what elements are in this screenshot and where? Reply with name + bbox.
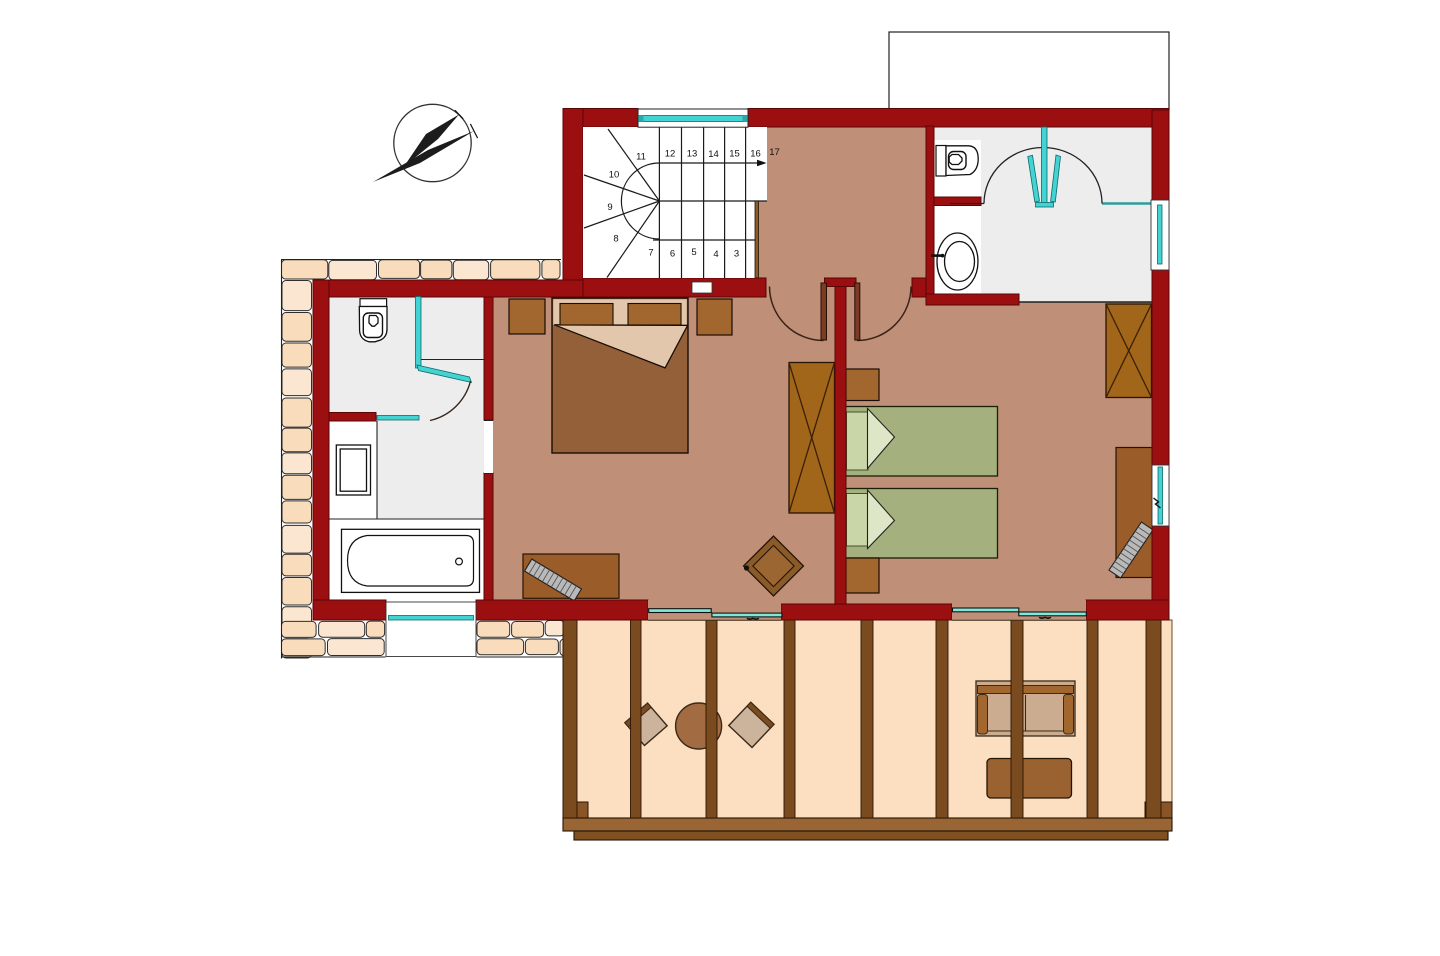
svg-text:10: 10 (609, 169, 620, 180)
svg-text:14: 14 (708, 149, 719, 160)
svg-text:15: 15 (729, 148, 740, 159)
svg-text:6: 6 (670, 248, 675, 259)
svg-text:13: 13 (687, 148, 698, 159)
svg-text:16: 16 (750, 148, 761, 159)
svg-text:9: 9 (607, 202, 612, 213)
svg-text:17: 17 (769, 147, 780, 158)
svg-text:5: 5 (691, 247, 696, 258)
svg-text:12: 12 (665, 148, 676, 159)
svg-text:4: 4 (713, 249, 718, 260)
svg-text:8: 8 (613, 233, 618, 244)
svg-text:7: 7 (648, 247, 653, 258)
svg-text:3: 3 (734, 248, 739, 259)
svg-text:11: 11 (636, 151, 646, 162)
